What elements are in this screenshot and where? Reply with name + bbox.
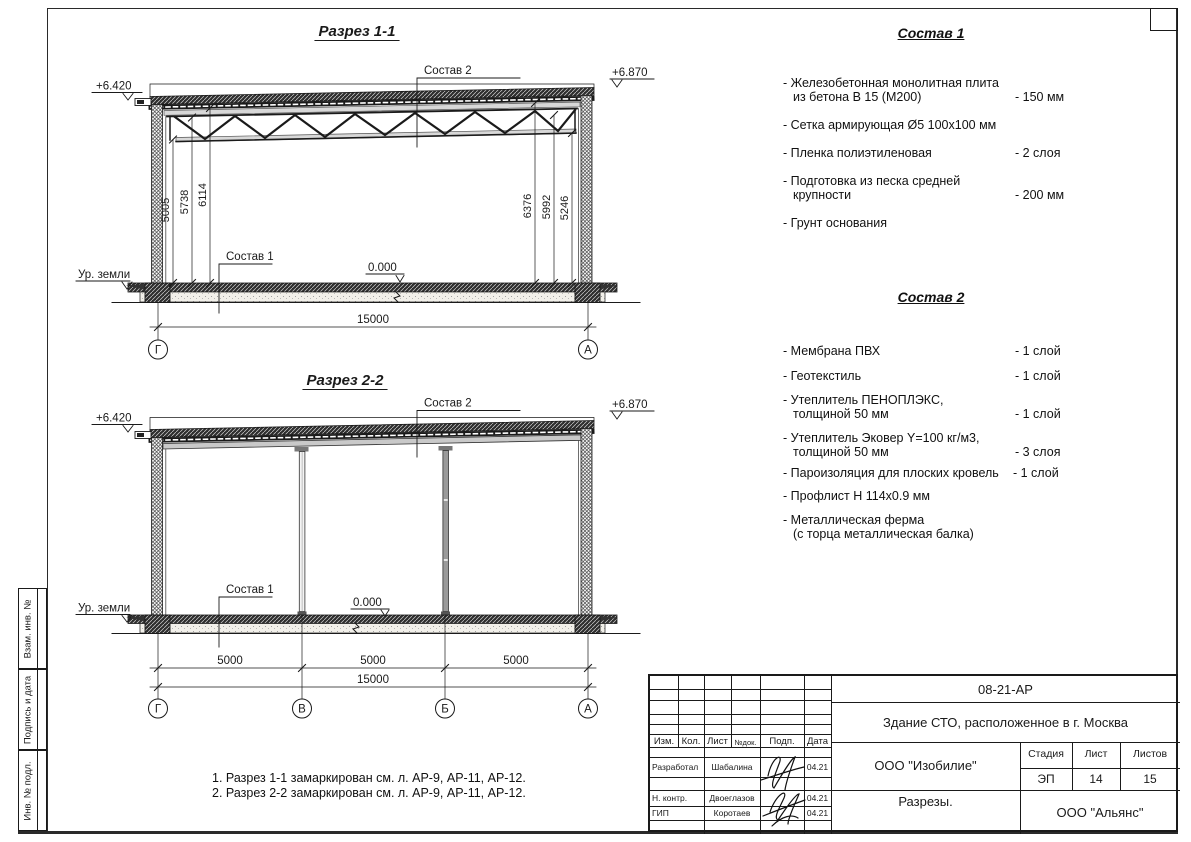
roof-slab [135,421,594,450]
drawing-sheet: Взам. инв. № Подпись и дата Инв. № подл. [0,0,1191,842]
date-gip: 04.21 [804,808,831,818]
section-2-2: Разрез 2-2 [76,372,654,718]
list-item: - Грунт основания [783,216,1110,230]
vdim-5005: 5005 [160,198,172,222]
axis-bubbles-s1: Г А [149,340,598,359]
item-text: - Утеплитель Эковер Y=100 кг/м3, [783,431,1110,445]
company-name: ООО "Альянс" [1020,805,1180,820]
vdim-6114: 6114 [197,183,209,207]
wall-right [581,96,592,284]
stage-value: ЭП [1020,772,1072,786]
item-value: - 1 слой [1015,369,1061,383]
date-ncontrol: 04.21 [804,793,831,803]
dim-15000-s1: 15000 [357,314,389,326]
wall-left [152,438,163,616]
callout-floor-label: Состав 1 [226,584,274,596]
col-kol: Кол. [678,736,704,747]
dim-5000-3: 5000 [503,655,529,667]
sheet-notes: 1. Разрез 1-1 замаркирован см. л. АР-9, … [212,771,526,801]
item-value: - 200 мм [1015,188,1064,202]
object-name: Здание СТО, расположенное в г. Москва [831,715,1180,730]
callout-roof-label: Состав 2 [424,398,472,410]
sheets-label: Листов [1120,748,1180,760]
item-value: - 1 слой [1015,344,1061,358]
list-item: - Геотекстиль - 1 слой [783,369,1110,383]
floor-slab [112,283,640,303]
elevation-right: +6.870 [612,67,648,79]
note-line-1: 1. Разрез 1-1 замаркирован см. л. АР-9, … [212,771,526,786]
foundation-left [145,615,170,634]
col-ndok: №док. [731,738,760,747]
list-item: - Пароизоляция для плоских кровель - 1 с… [783,466,1110,480]
column-axis-b [439,446,453,616]
name-ncontrol: Двоеглазов [704,793,760,803]
title-block: Изм. Кол. Лист №док. Подп. Дата Разработ… [648,674,1178,832]
section-1-1: Разрез 1-1 [76,23,654,359]
callout-roof-label: Состав 2 [424,65,472,77]
col-list: Лист [704,736,731,747]
foundation-left [145,283,170,303]
list-item: - Утеплитель Эковер Y=100 кг/м3, толщино… [783,431,1110,459]
item-text: - Утеплитель ПЕНОПЛЭКС, [783,393,1110,407]
vdim-5738: 5738 [179,190,191,214]
dim-5000-1: 5000 [217,655,243,667]
dim-5000-2: 5000 [360,655,386,667]
sheet-label: Лист [1072,748,1120,760]
item-text: - Грунт основания [783,216,1110,230]
name-developed: Шабалина [704,762,760,772]
list-item: - Профлист Н 114х0.9 мм [783,489,1110,503]
level-zero-label: 0.000 [353,597,382,609]
floor-slab [112,615,640,634]
section2-title: Разрез 2-2 [306,372,384,389]
signature-squiggles [758,750,806,832]
axis-bubbles-s2: Г В Б А [149,699,598,718]
item-value: - 2 слоя [1015,146,1060,160]
column-axis-v [295,447,309,616]
col-podp: Подп. [760,736,804,747]
callout-floor-label: Состав 1 [226,251,274,263]
elevation-left: +6.420 [96,413,132,425]
item-text: - Металлическая ферма [783,513,1110,527]
item-value: - 1 слой [1015,407,1061,421]
wall-right [581,429,592,616]
list-item: - Подготовка из песка средней крупности … [783,174,1110,202]
vdim-6376: 6376 [522,194,534,218]
axis-a-s2: А [584,704,592,716]
list-item: - Металлическая ферма (с торца металличе… [783,513,1110,541]
sostav1-list: Состав 1 - Железобетонная монолитная пли… [780,22,1110,252]
vdim-5246: 5246 [559,196,571,220]
item-text: - Пароизоляция для плоских кровель [783,466,1110,480]
list-item: - Железобетонная монолитная плита из бет… [783,76,1110,104]
sheets-value: 15 [1120,772,1180,786]
role-developed: Разработал [652,762,704,772]
role-ncontrol: Н. контр. [652,793,704,803]
foundation-right [575,283,600,303]
wall-left [152,105,163,284]
axis-v-s2: В [298,704,306,716]
sostav2-title: Состав 2 [780,290,1082,304]
item-text: (с торца металлическая балка) [783,527,1110,541]
item-text: - Железобетонная монолитная плита [783,76,1110,90]
elevation-left: +6.420 [96,81,132,93]
axis-g-s2: Г [155,704,162,716]
vdim-5992: 5992 [541,195,553,219]
axis-a-s1: А [584,345,592,357]
sostav2-list: Состав 2 - Мембрана ПВХ - 1 слой - Геоте… [780,290,1110,560]
axis-g-s1: Г [155,345,162,357]
item-text: - Подготовка из песка средней [783,174,1110,188]
level-zero-label: 0.000 [368,262,397,274]
org-name: ООО "Изобилие" [831,758,1020,773]
item-text: - Сетка армирующая Ø5 100х100 мм [783,118,1110,132]
stage-label: Стадия [1020,748,1072,760]
col-data: Дата [804,736,831,747]
list-item: - Утеплитель ПЕНОПЛЭКС, толщиной 50 мм -… [783,393,1110,421]
ground-level-label: Ур. земли [78,603,130,615]
list-item: - Пленка полиэтиленовая - 2 слоя [783,146,1110,160]
ground-level-label: Ур. земли [78,269,130,281]
list-item: - Сетка армирующая Ø5 100х100 мм [783,118,1110,132]
sheet-value: 14 [1072,772,1120,786]
item-text: - Профлист Н 114х0.9 мм [783,489,1110,503]
note-line-2: 2. Разрез 2-2 замаркирован см. л. АР-9, … [212,786,526,801]
doc-number: 08-21-АР [831,682,1180,697]
col-izm: Изм. [650,736,678,747]
dim-15000-s2: 15000 [357,674,389,686]
sostav1-title: Состав 1 [780,26,1082,40]
axis-b-s2: Б [441,704,449,716]
item-text: толщиной 50 мм [783,445,1110,459]
elevation-right: +6.870 [612,399,648,411]
name-gip: Коротаев [704,808,760,818]
item-value: - 1 слой [1013,466,1059,480]
drawing-title: Разрезы. [831,794,1020,809]
foundation-right [575,615,600,634]
list-item: - Мембрана ПВХ - 1 слой [783,344,1110,358]
item-value: - 3 слоя [1015,445,1060,459]
date-developed: 04.21 [804,762,831,772]
item-text: - Пленка полиэтиленовая [783,146,1110,160]
section1-title: Разрез 1-1 [318,23,395,40]
role-gip: ГИП [652,808,704,818]
item-value: - 150 мм [1015,90,1064,104]
